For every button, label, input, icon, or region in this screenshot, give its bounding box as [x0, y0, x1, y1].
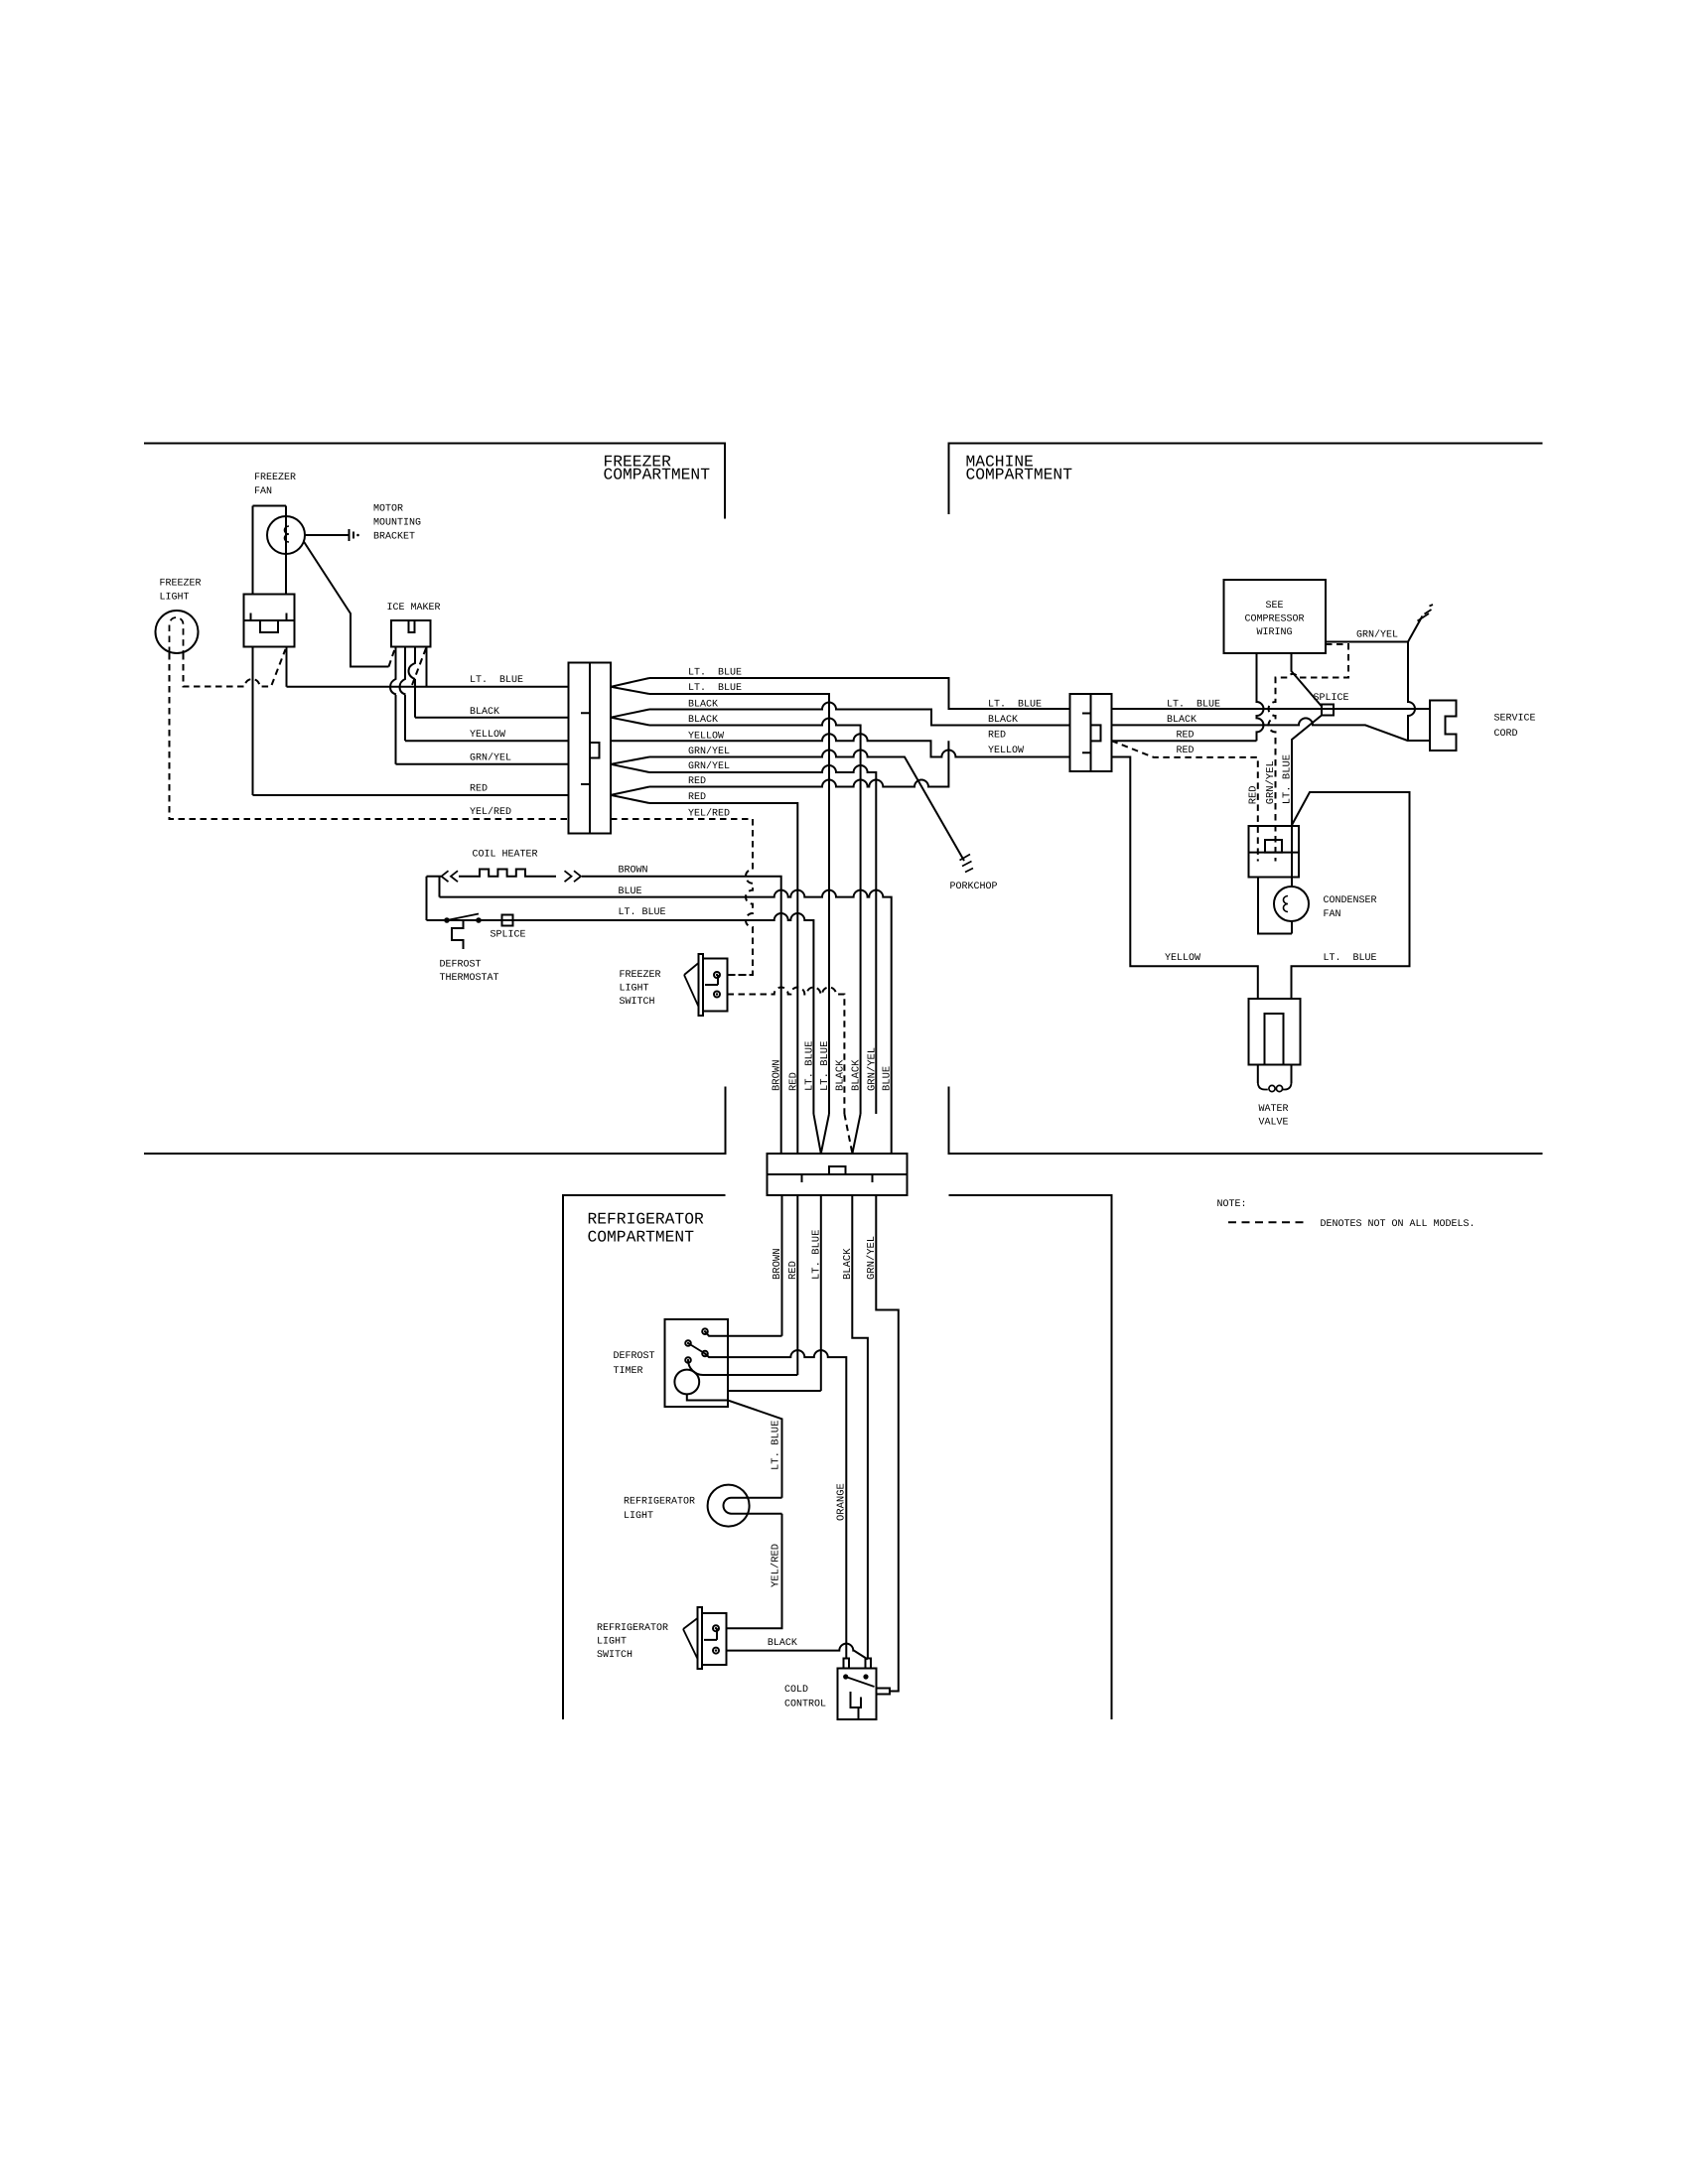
svg-text:SWITCH: SWITCH: [620, 997, 655, 1008]
svg-text:DENOTES NOT ON ALL MODELS.: DENOTES NOT ON ALL MODELS.: [1321, 1219, 1476, 1230]
svg-text:GRN/YEL: GRN/YEL: [866, 1047, 878, 1091]
svg-text:LT. BLUE: LT. BLUE: [1282, 754, 1294, 804]
svg-text:BLACK: BLACK: [842, 1248, 854, 1280]
svg-text:RED: RED: [787, 1072, 799, 1091]
svg-text:DEFROST: DEFROST: [614, 1351, 655, 1362]
svg-text:CONTROL: CONTROL: [784, 1700, 826, 1710]
svg-text:BROWN: BROWN: [772, 1248, 783, 1280]
svg-text:BLACK: BLACK: [1167, 715, 1196, 726]
svg-text:SWITCH: SWITCH: [597, 1650, 633, 1661]
svg-text:YELLOW: YELLOW: [688, 732, 724, 743]
svg-text:COLD: COLD: [784, 1685, 808, 1696]
svg-text:FAN: FAN: [254, 486, 272, 497]
svg-text:LT. BLUE: LT. BLUE: [688, 668, 742, 679]
svg-text:COMPARTMENT: COMPARTMENT: [604, 466, 711, 484]
svg-text:GRN/YEL: GRN/YEL: [1265, 760, 1277, 804]
svg-text:FREEZER: FREEZER: [160, 579, 202, 590]
svg-text:BLACK: BLACK: [688, 715, 718, 726]
svg-text:BROWN: BROWN: [772, 1059, 783, 1091]
svg-text:LT. BLUE: LT. BLUE: [810, 1230, 822, 1280]
svg-text:MOUNTING: MOUNTING: [373, 518, 421, 529]
svg-text:REFRIGERATOR: REFRIGERATOR: [624, 1497, 695, 1508]
svg-text:MOTOR: MOTOR: [373, 504, 403, 515]
svg-text:BLACK: BLACK: [851, 1059, 863, 1091]
svg-text:LIGHT: LIGHT: [160, 593, 190, 604]
svg-text:LT. BLUE: LT. BLUE: [470, 675, 523, 686]
svg-text:SPLICE: SPLICE: [1314, 693, 1349, 704]
svg-text:RED: RED: [988, 731, 1006, 742]
svg-text:GRN/YEL: GRN/YEL: [866, 1236, 878, 1280]
svg-text:THERMOSTAT: THERMOSTAT: [440, 973, 499, 984]
svg-text:RED: RED: [688, 776, 706, 787]
svg-text:LIGHT: LIGHT: [597, 1637, 627, 1648]
svg-text:FREEZER: FREEZER: [254, 473, 296, 483]
svg-text:CONDENSER: CONDENSER: [1324, 895, 1377, 906]
svg-text:RED: RED: [787, 1261, 799, 1280]
svg-text:COIL HEATER: COIL HEATER: [473, 850, 538, 861]
svg-text:BLACK: BLACK: [834, 1059, 846, 1091]
svg-text:FREEZER: FREEZER: [620, 970, 661, 981]
svg-text:BLACK: BLACK: [768, 1638, 797, 1649]
svg-text:ICE MAKER: ICE MAKER: [387, 603, 441, 614]
svg-text:COMPRESSOR: COMPRESSOR: [1244, 614, 1304, 625]
svg-text:LT. BLUE: LT. BLUE: [1324, 953, 1377, 964]
svg-text:FAN: FAN: [1324, 909, 1341, 920]
svg-text:RED: RED: [1177, 746, 1195, 756]
svg-text:PORKCHOP: PORKCHOP: [950, 882, 998, 892]
svg-text:YEL/RED: YEL/RED: [470, 806, 511, 818]
svg-text:SERVICE: SERVICE: [1494, 714, 1536, 725]
svg-text:BLUE: BLUE: [882, 1066, 894, 1091]
svg-text:LIGHT: LIGHT: [620, 984, 649, 995]
svg-text:REFRIGERATOR: REFRIGERATOR: [597, 1623, 668, 1634]
svg-text:GRN/YEL: GRN/YEL: [688, 746, 730, 757]
svg-text:GRN/YEL: GRN/YEL: [1356, 629, 1398, 641]
svg-text:GRN/YEL: GRN/YEL: [688, 760, 730, 772]
svg-text:BLACK: BLACK: [988, 715, 1018, 726]
svg-text:BRACKET: BRACKET: [373, 532, 415, 543]
svg-text:WIRING: WIRING: [1256, 627, 1292, 638]
svg-text:VALVE: VALVE: [1259, 1118, 1289, 1129]
svg-text:RED: RED: [688, 792, 706, 803]
svg-text:YEL/RED: YEL/RED: [688, 808, 730, 820]
svg-text:RED: RED: [1177, 731, 1195, 742]
svg-text:CORD: CORD: [1494, 729, 1518, 740]
svg-text:LT. BLUE: LT. BLUE: [988, 700, 1042, 711]
svg-text:YELLOW: YELLOW: [988, 746, 1024, 756]
svg-text:LIGHT: LIGHT: [624, 1511, 653, 1522]
svg-text:LT. BLUE: LT. BLUE: [1167, 700, 1220, 711]
svg-text:REFRIGERATOR: REFRIGERATOR: [588, 1210, 704, 1229]
svg-text:DEFROST: DEFROST: [440, 960, 482, 971]
svg-text:SEE: SEE: [1265, 601, 1283, 612]
svg-text:RED: RED: [1247, 785, 1259, 804]
svg-text:YELLOW: YELLOW: [470, 730, 505, 741]
svg-text:SPLICE: SPLICE: [491, 930, 526, 941]
svg-text:NOTE:: NOTE:: [1217, 1199, 1247, 1210]
svg-text:RED: RED: [470, 784, 488, 795]
svg-text:YEL/RED: YEL/RED: [771, 1544, 782, 1587]
svg-text:COMPARTMENT: COMPARTMENT: [588, 1227, 695, 1246]
svg-text:BLACK: BLACK: [688, 700, 718, 711]
svg-text:LT. BLUE: LT. BLUE: [688, 683, 742, 694]
svg-text:GRN/YEL: GRN/YEL: [470, 752, 511, 764]
svg-text:COMPARTMENT: COMPARTMENT: [966, 466, 1073, 484]
svg-text:BLUE: BLUE: [619, 887, 642, 897]
svg-text:LT. BLUE: LT. BLUE: [619, 907, 666, 918]
svg-text:BLACK: BLACK: [470, 707, 499, 718]
svg-text:YELLOW: YELLOW: [1165, 953, 1200, 964]
svg-text:LT. BLUE: LT. BLUE: [819, 1041, 831, 1091]
svg-text:WATER: WATER: [1259, 1104, 1289, 1115]
svg-text:LT. BLUE: LT. BLUE: [771, 1421, 782, 1470]
svg-text:LT. BLUE: LT. BLUE: [803, 1041, 815, 1091]
svg-text:BROWN: BROWN: [619, 866, 648, 877]
svg-text:TIMER: TIMER: [614, 1366, 643, 1377]
svg-text:ORANGE: ORANGE: [836, 1483, 848, 1521]
